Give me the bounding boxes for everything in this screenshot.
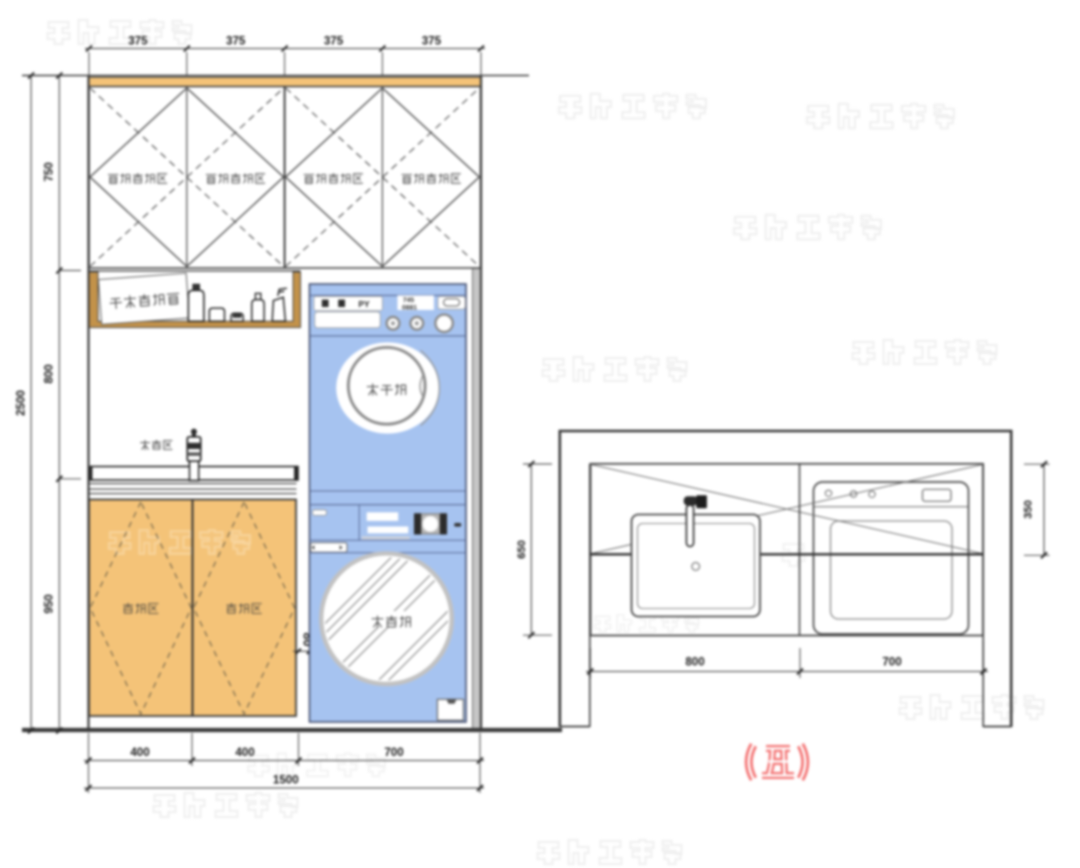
svg-text:1500: 1500 bbox=[273, 774, 299, 787]
svg-text:2500: 2500 bbox=[15, 390, 28, 416]
svg-text:375: 375 bbox=[128, 35, 148, 48]
svg-text:800: 800 bbox=[685, 656, 704, 669]
svg-text:800: 800 bbox=[43, 364, 56, 383]
svg-text:350: 350 bbox=[1023, 500, 1035, 519]
svg-text:700: 700 bbox=[882, 656, 901, 669]
svg-text:700: 700 bbox=[384, 746, 403, 759]
svg-text:750: 750 bbox=[43, 162, 56, 181]
svg-text:950: 950 bbox=[43, 594, 56, 613]
svg-text:650: 650 bbox=[516, 540, 528, 559]
svg-text:0881: 0881 bbox=[402, 305, 417, 312]
svg-text:400: 400 bbox=[130, 746, 149, 759]
svg-text:375: 375 bbox=[422, 35, 442, 48]
svg-text:375: 375 bbox=[324, 35, 344, 48]
svg-text:745: 745 bbox=[403, 297, 415, 304]
svg-text:400: 400 bbox=[235, 746, 254, 759]
svg-text:PY: PY bbox=[358, 299, 370, 309]
svg-text:375: 375 bbox=[226, 35, 246, 48]
